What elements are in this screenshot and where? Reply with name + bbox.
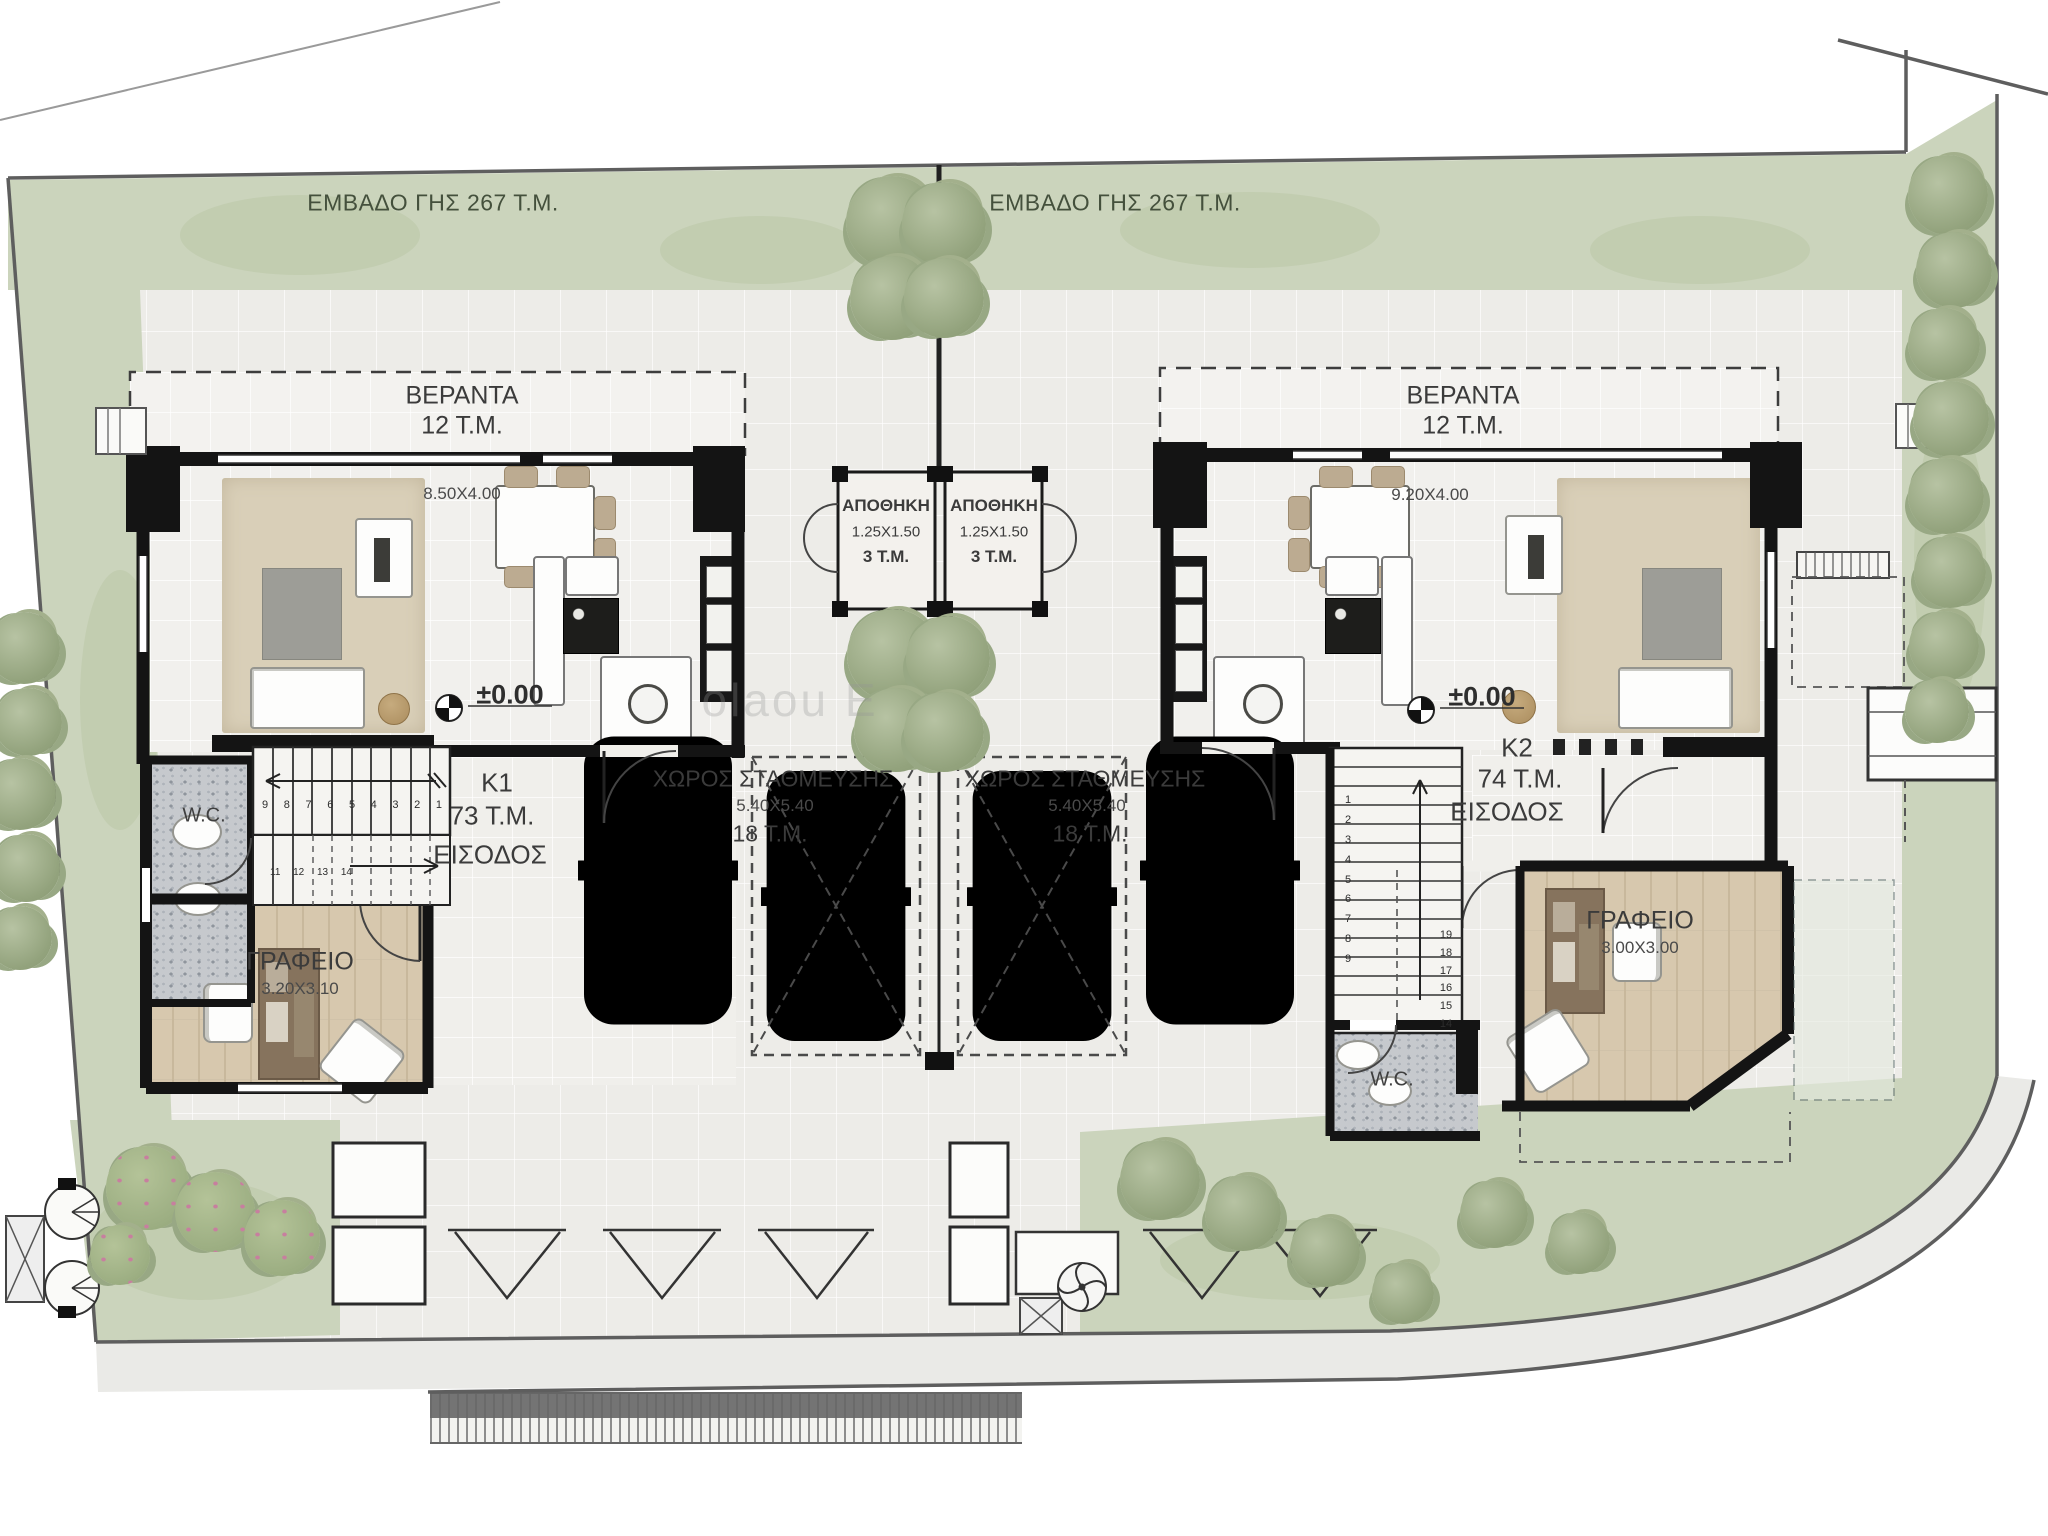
tree <box>1120 1140 1200 1220</box>
k2-veranda-label: ΒΕΡΑΝΤΑ <box>1407 382 1520 411</box>
bush <box>90 1225 150 1285</box>
k2-stair-numbers-inner: 123456789 <box>1338 795 1358 965</box>
k2-entrance-label: ΕΙΣΟΔΟΣ <box>1450 797 1563 828</box>
k1-stair-numbers-lower: 11121314 <box>270 868 352 882</box>
storage-right-dim: 1.25X1.50 <box>960 524 1028 541</box>
k2-unit-label: K2 <box>1501 733 1533 764</box>
k2-unit-area: 74 Τ.Μ. <box>1478 764 1563 795</box>
storage-right-label: ΑΠΟΘΗΚΗ <box>950 496 1038 516</box>
bush <box>244 1200 320 1276</box>
site-floor-plan: ΕΜΒΑΔΟ ΓΗΣ 267 Τ.Μ. ΕΜΒΑΔΟ ΓΗΣ 267 Τ.Μ. … <box>0 0 2048 1536</box>
party-wall-block <box>925 1052 954 1070</box>
k2-veranda-area: 12 Τ.Μ. <box>1422 412 1504 441</box>
bush <box>175 1172 255 1252</box>
k1-veranda-area: 12 Τ.Μ. <box>421 412 503 441</box>
storage-rooms <box>804 466 1076 617</box>
k1-unit-label: K1 <box>481 768 513 799</box>
tree <box>1908 308 1980 380</box>
k2-walls <box>1153 404 1996 1162</box>
tree <box>1914 536 1986 608</box>
tree <box>1908 155 1988 235</box>
storage-left-label: ΑΠΟΘΗΚΗ <box>842 496 930 516</box>
k2-level-label: ±0.00 <box>1448 682 1515 713</box>
tree <box>1290 1217 1360 1287</box>
veranda-outline <box>130 368 1778 456</box>
tree <box>1909 611 1979 681</box>
plot-right-area-label: ΕΜΒΑΔΟ ΓΗΣ 267 Τ.Μ. <box>989 190 1241 217</box>
watermark: olaou E <box>701 673 878 727</box>
tree <box>1913 381 1989 457</box>
k1-office-dim: 3.20X3.10 <box>261 979 339 999</box>
tree <box>904 258 984 338</box>
plot-left-area-label: ΕΜΒΑΔΟ ΓΗΣ 267 Τ.Μ. <box>307 190 559 217</box>
k2-parking-area: 18 Τ.Μ. <box>1052 821 1127 848</box>
k1-wc-label: W.C. <box>182 805 225 828</box>
tree <box>1205 1175 1281 1251</box>
k2-stair-numbers-outer: 191817161514 <box>1436 930 1456 1030</box>
storage-left-dim: 1.25X1.50 <box>852 524 920 541</box>
driveway-pillars <box>333 1143 1008 1304</box>
tree <box>1548 1212 1610 1274</box>
utility-units <box>1016 1232 1118 1334</box>
k1-office-label: ΓΡΑΦΕΙΟ <box>246 948 354 977</box>
k1-level-label: ±0.00 <box>476 680 543 711</box>
k1-veranda-label: ΒΕΡΑΝΤΑ <box>406 382 519 411</box>
tree <box>906 616 990 700</box>
k1-parking-label: ΧΩΡΟΣ ΣΤΑΘΜΕΥΣΗΣ <box>653 766 894 793</box>
entrance-gate-left <box>6 1178 99 1318</box>
storage-right-area: 3 Τ.Μ. <box>971 547 1017 567</box>
k2-living-dim: 9.20X4.00 <box>1391 485 1469 505</box>
k2-wc-label: W.C. <box>1370 1069 1413 1092</box>
k2-office-label: ΓΡΑΦΕΙΟ <box>1586 907 1694 936</box>
tree <box>904 692 984 772</box>
tree <box>902 182 986 266</box>
tree <box>1372 1262 1434 1324</box>
k1-parking-area: 18 Τ.Μ. <box>732 821 807 848</box>
k1-unit-area: 73 Τ.Μ. <box>450 801 535 832</box>
k1-living-dim: 8.50X4.00 <box>423 484 501 504</box>
k1-parking-dim: 5.40X5.40 <box>736 796 814 816</box>
k1-stair-numbers-upper: 987654321 <box>262 800 442 818</box>
storage-left-area: 3 Τ.Μ. <box>863 547 909 567</box>
tree <box>1916 232 1992 308</box>
k2-office-dim: 3.00X3.00 <box>1601 938 1679 958</box>
tree <box>1908 458 1984 534</box>
k1-entrance-label: ΕΙΣΟΔΟΣ <box>433 840 546 871</box>
k2-parking-label: ΧΩΡΟΣ ΣΤΑΘΜΕΥΣΗΣ <box>965 766 1206 793</box>
tree <box>1905 679 1969 743</box>
k2-parking-dim: 5.40X5.40 <box>1048 796 1126 816</box>
tree <box>1460 1180 1528 1248</box>
k2-threshold-dots <box>1553 739 1643 755</box>
